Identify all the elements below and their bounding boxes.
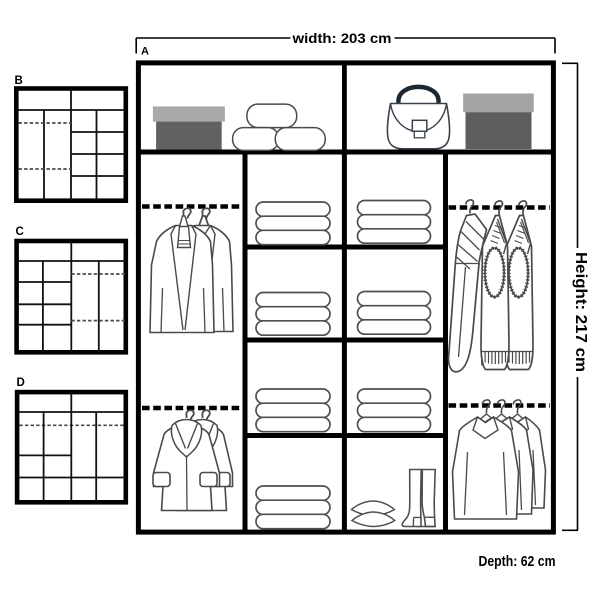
svg-text:D: D <box>17 377 25 389</box>
svg-text:A: A <box>141 45 149 57</box>
svg-text:B: B <box>15 75 23 87</box>
svg-text:C: C <box>16 226 24 238</box>
svg-text:width: 203 cm: width: 203 cm <box>291 30 391 46</box>
svg-text:Height: 217 cm: Height: 217 cm <box>572 252 589 372</box>
svg-text:Depth: 62 cm: Depth: 62 cm <box>479 553 556 570</box>
